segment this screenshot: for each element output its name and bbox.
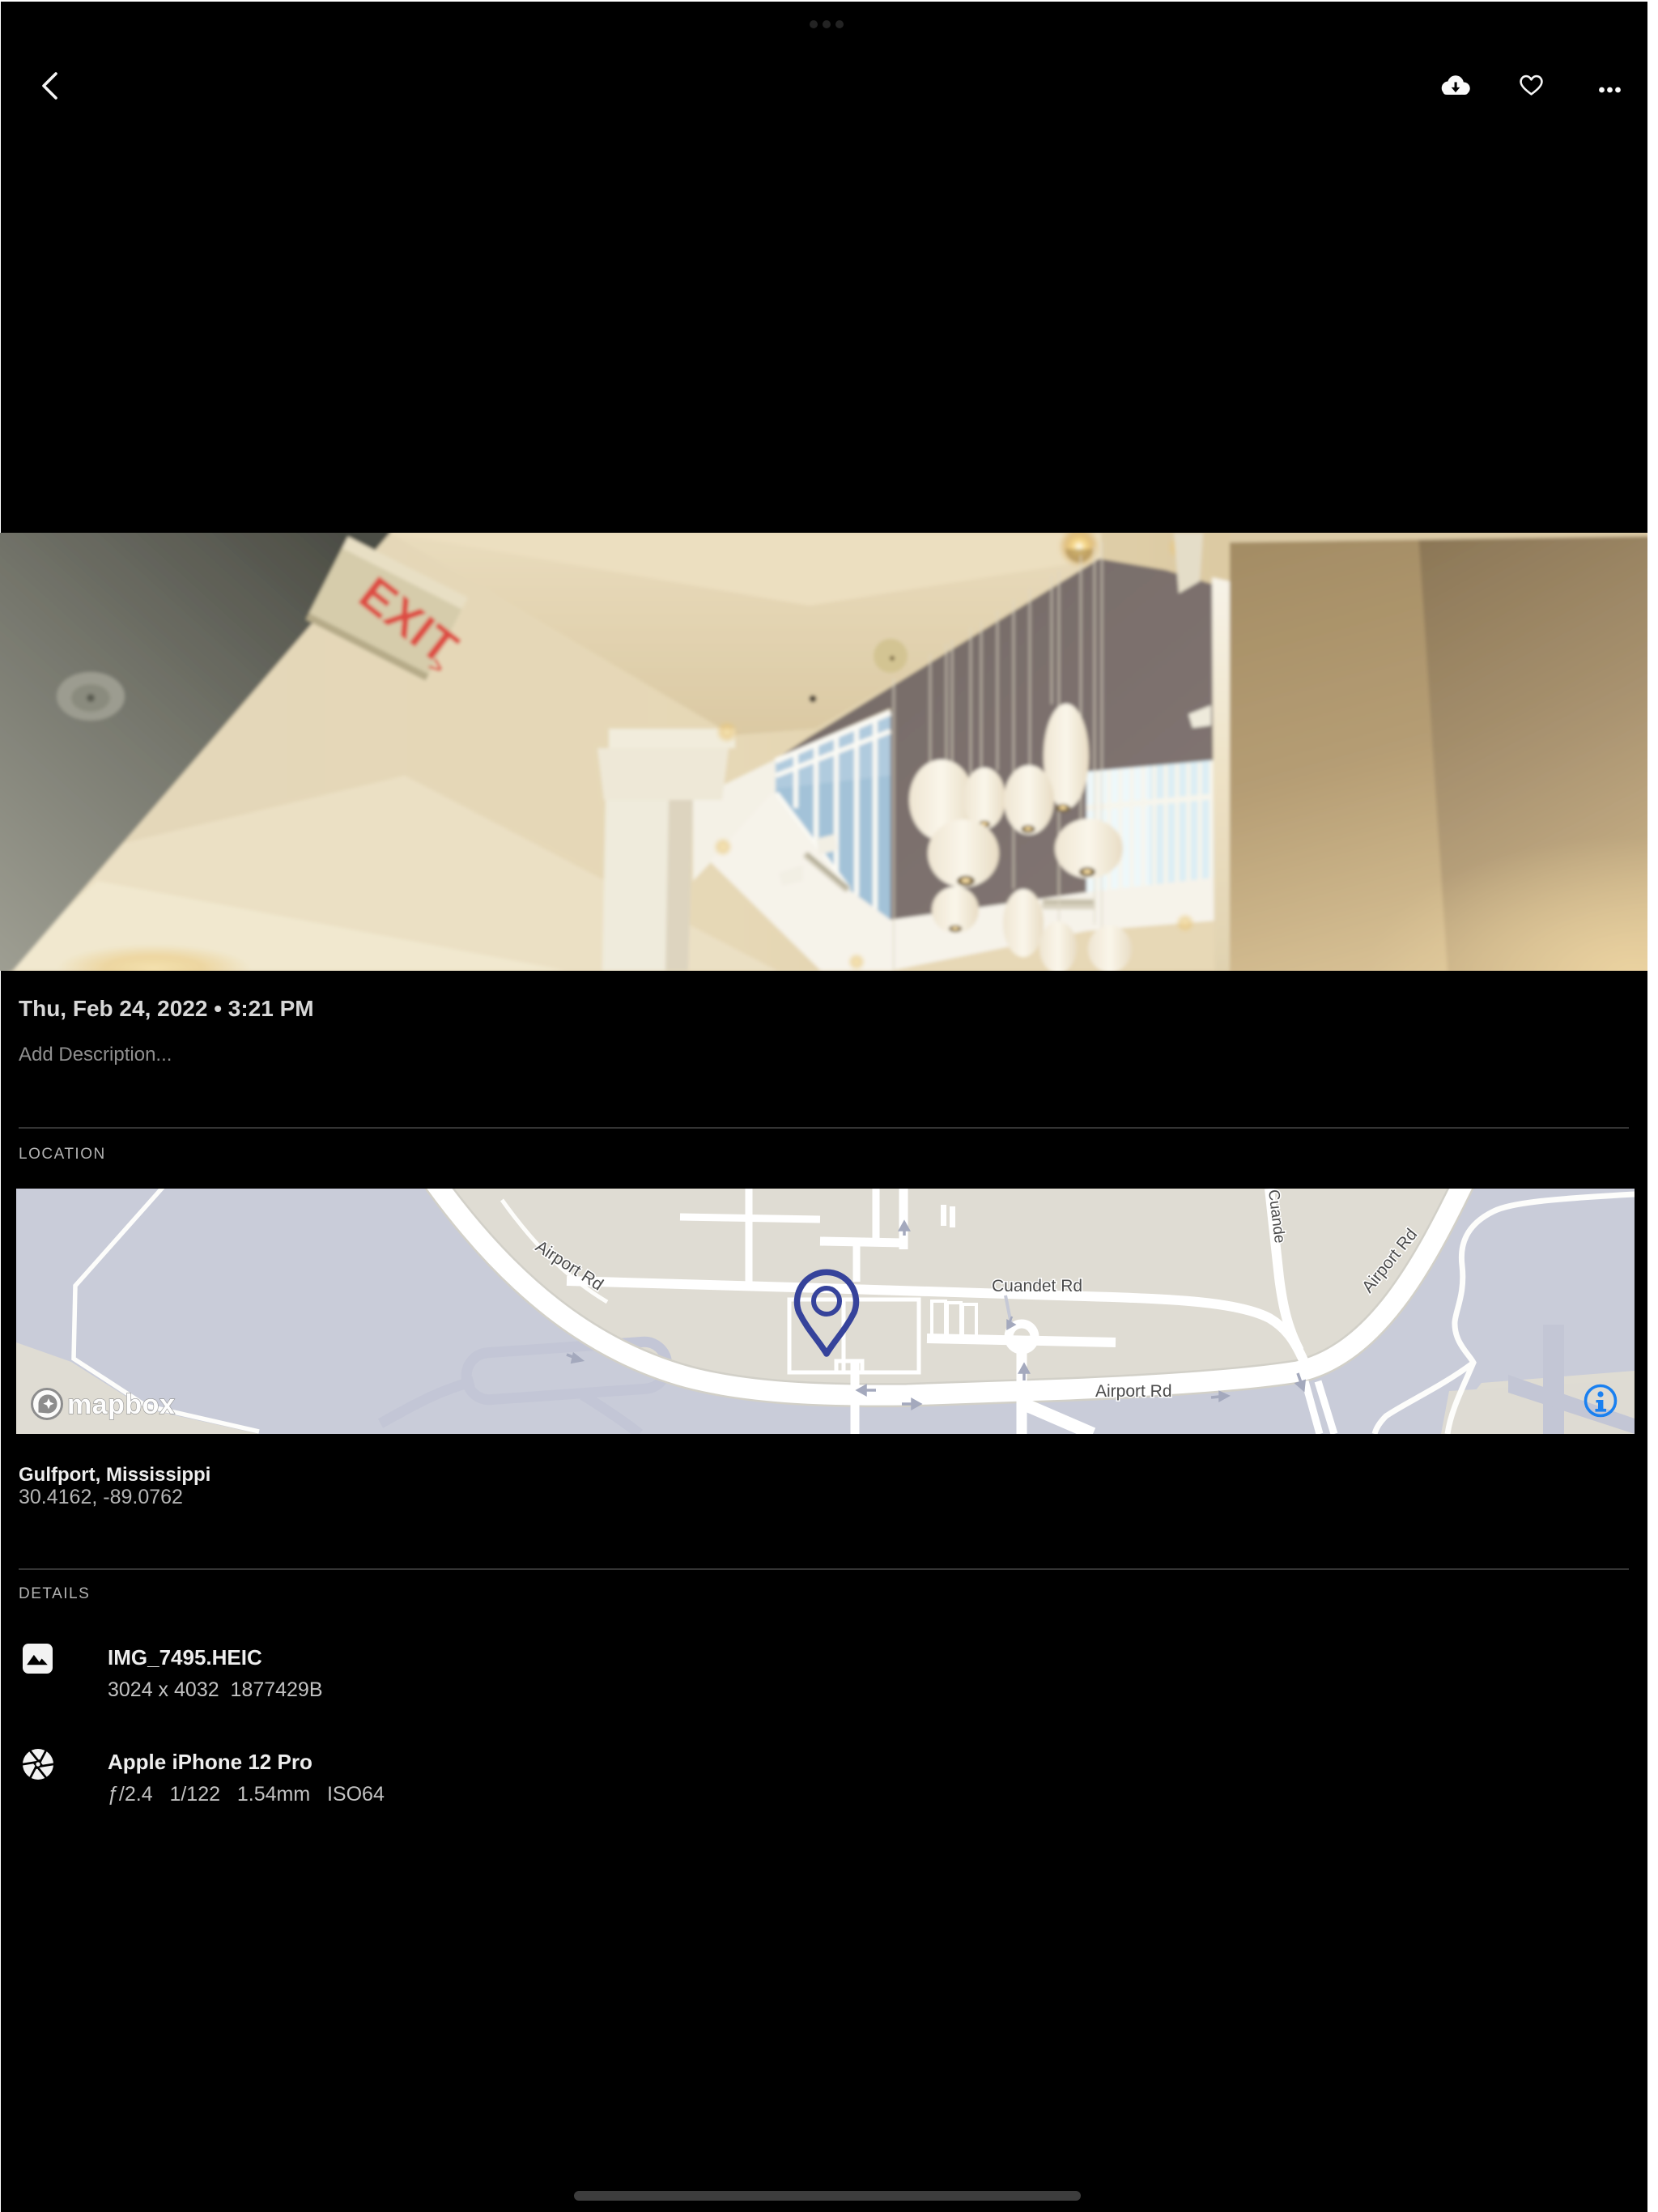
svg-text:Cuandet Rd: Cuandet Rd <box>992 1277 1082 1295</box>
svg-text:Airport Rd: Airport Rd <box>1095 1382 1172 1401</box>
svg-text:mapbox: mapbox <box>67 1389 175 1420</box>
